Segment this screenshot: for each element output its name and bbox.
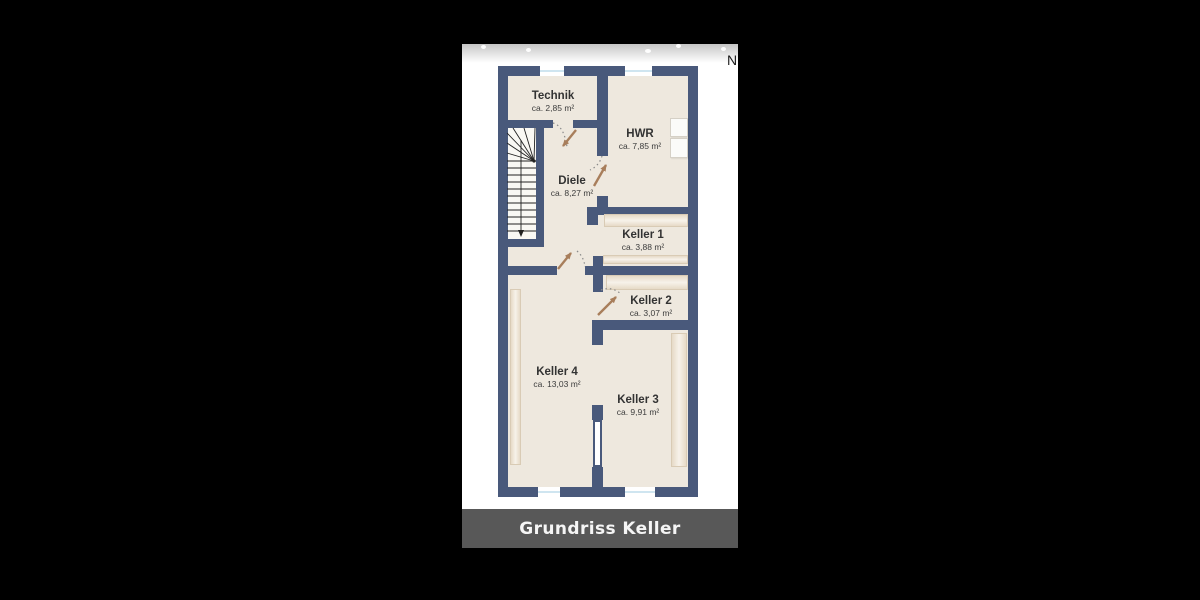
- room-area: ca. 2,85 m²: [532, 103, 575, 113]
- screenshot-stage: N: [0, 0, 1200, 600]
- room-name: Keller 4: [533, 366, 580, 379]
- appliance-box: [670, 138, 688, 158]
- photo-speck: [481, 45, 486, 49]
- shelf: [604, 214, 688, 227]
- photo-strip-top: [462, 0, 738, 44]
- room-name: Keller 1: [622, 229, 665, 242]
- wall: [592, 330, 603, 345]
- left-letterbox: [0, 0, 462, 600]
- room-area: ca. 9,91 m²: [617, 407, 660, 417]
- door-leaf: [593, 420, 602, 467]
- room-area: ca. 3,07 m²: [630, 308, 673, 318]
- room-name: HWR: [619, 128, 662, 141]
- shelf: [510, 289, 521, 465]
- room-name: Keller 3: [617, 394, 660, 407]
- room-area: ca. 8,27 m²: [551, 188, 594, 198]
- wall: [560, 487, 625, 497]
- window: [540, 66, 564, 76]
- room-name: Keller 2: [630, 295, 673, 308]
- wall: [498, 239, 544, 247]
- appliance-box: [670, 118, 688, 137]
- wall: [592, 320, 688, 330]
- wall: [597, 76, 608, 156]
- photo-speck: [526, 48, 531, 52]
- caption-title: Grundriss Keller: [519, 519, 680, 539]
- shelf: [606, 275, 688, 290]
- window: [538, 487, 560, 497]
- room-label-keller1: Keller 1 ca. 3,88 m²: [622, 229, 665, 252]
- room-label-hwr: HWR ca. 7,85 m²: [619, 128, 662, 151]
- wall: [652, 66, 698, 76]
- wall: [592, 467, 603, 487]
- north-indicator: N: [727, 52, 737, 68]
- photo-speck: [676, 44, 681, 48]
- room-name: Technik: [532, 90, 575, 103]
- room-label-technik: Technik ca. 2,85 m²: [532, 90, 575, 113]
- photo-strip-bottom: [462, 550, 738, 600]
- window: [625, 66, 652, 76]
- room-label-diele: Diele ca. 8,27 m²: [551, 175, 594, 198]
- caption-bar: Grundriss Keller: [462, 509, 738, 548]
- wall: [655, 487, 698, 497]
- room-label-keller4: Keller 4 ca. 13,03 m²: [533, 366, 580, 389]
- wall: [592, 405, 603, 420]
- window: [625, 487, 655, 497]
- stairwell: [507, 127, 536, 239]
- room-label-keller2: Keller 2 ca. 3,07 m²: [630, 295, 673, 318]
- wall: [498, 266, 557, 275]
- room-area: ca. 7,85 m²: [619, 141, 662, 151]
- wall: [498, 66, 508, 497]
- room-name: Diele: [551, 175, 594, 188]
- shelf: [603, 255, 688, 264]
- room-area: ca. 3,88 m²: [622, 242, 665, 252]
- photo-fade-edge: [462, 44, 738, 66]
- wall: [688, 66, 698, 497]
- wall: [564, 66, 625, 76]
- shelf: [671, 333, 687, 467]
- wall: [498, 120, 553, 128]
- wall: [498, 487, 538, 497]
- wall: [593, 256, 603, 292]
- wall: [498, 66, 540, 76]
- wall: [536, 127, 544, 239]
- photo-speck: [721, 47, 726, 51]
- wall: [573, 120, 599, 128]
- room-label-keller3: Keller 3 ca. 9,91 m²: [617, 394, 660, 417]
- wall: [587, 207, 598, 225]
- photo-speck: [645, 49, 651, 53]
- room-area: ca. 13,03 m²: [533, 379, 580, 389]
- right-letterbox: [738, 0, 1200, 600]
